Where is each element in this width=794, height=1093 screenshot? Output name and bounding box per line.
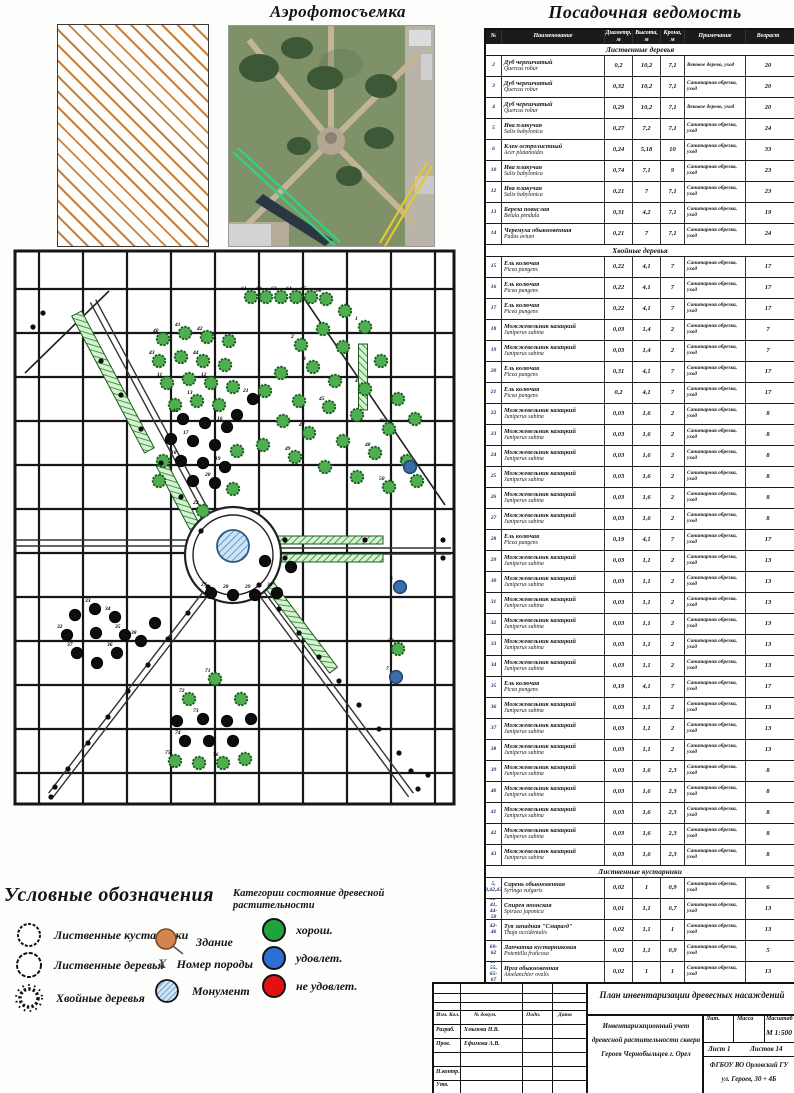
tree-number-label: 72 xyxy=(179,688,185,694)
tree-marker-good xyxy=(275,367,288,380)
tree-number-label: 5 xyxy=(400,456,403,462)
cell-age: 6 xyxy=(746,878,790,898)
cell-note: Санитарная обрезка, уход xyxy=(685,530,746,550)
cell-species: Можжевельник казацкийJuniperus sabina xyxy=(502,845,605,865)
cell-age: 13 xyxy=(746,551,790,571)
tree-marker-dark xyxy=(231,409,242,420)
cell-crown: 7,1 xyxy=(661,182,685,202)
path-tree-marker xyxy=(98,358,103,363)
cell-note: Санитарная обрезка, уход xyxy=(685,278,746,298)
cell-note: Санитарная обрезка, уход xyxy=(685,224,746,244)
tree-marker-good xyxy=(260,291,273,304)
cell-age: 13 xyxy=(746,593,790,613)
tree-marker-fair xyxy=(404,461,417,474)
cell-species: Ива плакучаяSalix babylonica xyxy=(502,119,605,139)
cell-diameter: 0,03 xyxy=(605,551,633,571)
cell-species: Ель колючаяPicea pungens xyxy=(502,278,605,298)
tree-marker-dark xyxy=(221,715,232,726)
cell-diameter: 0,03 xyxy=(605,572,633,592)
cell-crown: 7 xyxy=(661,383,685,403)
cell-number: 17 xyxy=(486,299,502,319)
cell-note: Санитарная обрезка, уход xyxy=(685,656,746,676)
cell-note: Вековое дерево, уход xyxy=(685,98,746,118)
condition-label: не удовлет. xyxy=(296,979,357,994)
cell-note: Санитарная обрезка, уход xyxy=(685,740,746,760)
stamp-org-line2: ул. Героев, 30 + 4Б xyxy=(706,1076,792,1083)
table-row: 25Можжевельник казацкийJuniperus sabina0… xyxy=(486,467,794,488)
table-row: 39Можжевельник казацкийJuniperus sabina0… xyxy=(486,761,794,782)
cell-diameter: 0,03 xyxy=(605,614,633,634)
cell-species: Можжевельник казацкийJuniperus sabina xyxy=(502,467,605,487)
cell-crown: 2 xyxy=(661,656,685,676)
table-row: 26Можжевельник казацкийJuniperus sabina0… xyxy=(486,488,794,509)
cell-species: Можжевельник казацкийJuniperus sabina xyxy=(502,719,605,739)
cell-height: 1,1 xyxy=(633,740,661,760)
table-row: 5, 9,42,43Сирень обыкновеннаяSyringa vul… xyxy=(486,878,794,899)
table-row: 38Можжевельник казацкийJuniperus sabina0… xyxy=(486,740,794,761)
tree-number-label: 7 xyxy=(386,666,389,672)
tree-number-label: 52 xyxy=(388,638,394,644)
cell-number: 36-41, 44-50 xyxy=(486,899,502,919)
table-row: 14Черемуха обыкновеннаяPadus avium0,2177… xyxy=(486,224,794,245)
tree-number-label: 15 xyxy=(173,408,179,414)
path-tree-marker xyxy=(425,772,430,777)
tree-marker-good xyxy=(275,291,288,304)
tree-marker-good xyxy=(383,481,396,494)
table-row: 33Можжевельник казацкийJuniperus sabina0… xyxy=(486,635,794,656)
tree-marker-dark xyxy=(187,475,198,486)
cell-note: Санитарная обрезка, уход xyxy=(685,161,746,181)
cell-age: 13 xyxy=(746,698,790,718)
cell-diameter: 0,31 xyxy=(605,203,633,223)
tree-number-label: 61 xyxy=(241,286,247,292)
tree-number-label: 22 xyxy=(192,500,199,506)
cell-height: 4,1 xyxy=(633,530,661,550)
cell-number: 35 xyxy=(486,677,502,697)
cell-number: 13 xyxy=(486,203,502,223)
aerial-photo xyxy=(228,25,435,247)
stamp-col-podp: Подп. xyxy=(526,1012,540,1018)
tree-marker-good xyxy=(175,351,188,364)
legend-item-trees: Лиственные деревья xyxy=(14,950,164,980)
cell-note: Санитарная обрезка, уход xyxy=(685,782,746,802)
tree-marker-dark xyxy=(91,657,102,668)
cell-crown: 7,1 xyxy=(661,224,685,244)
cell-note: Санитарная обрезка, уход xyxy=(685,404,746,424)
cell-diameter: 0,22 xyxy=(605,257,633,277)
stamp-row-razrab: Разраб. xyxy=(436,1027,455,1033)
cell-species: Можжевельник казацкийJuniperus sabina xyxy=(502,551,605,571)
path-tree-marker xyxy=(30,324,35,329)
tree-marker-dark xyxy=(111,647,122,658)
path-tree-marker xyxy=(65,766,70,771)
table-row: 24Можжевельник казацкийJuniperus sabina0… xyxy=(486,446,794,467)
tree-marker-dark xyxy=(259,555,270,566)
cell-crown: 2 xyxy=(661,425,685,445)
cell-number: 15 xyxy=(486,257,502,277)
path-tree-marker xyxy=(296,630,301,635)
tree-number-label: 18 xyxy=(171,450,177,456)
cell-diameter: 0,21 xyxy=(605,182,633,202)
cell-age: 20 xyxy=(746,77,790,97)
cell-age: 8 xyxy=(746,824,790,844)
table-row: 10Ива плакучаяSalix babylonica0,747,19Са… xyxy=(486,161,794,182)
cell-diameter: 0,03 xyxy=(605,320,633,340)
cell-height: 4,1 xyxy=(633,362,661,382)
stamp-project-line2: древесной растительности сквера xyxy=(590,1036,702,1044)
table-row: 43Можжевельник казацкийJuniperus sabina0… xyxy=(486,845,794,866)
cell-species: Ива плакучаяSalix babylonica xyxy=(502,182,605,202)
table-row: 22Можжевельник казацкийJuniperus sabina0… xyxy=(486,404,794,425)
cell-diameter: 0,03 xyxy=(605,341,633,361)
cell-species: Ирга обыкновеннаяAmelanchier ovalis xyxy=(502,962,605,982)
cell-age: 17 xyxy=(746,362,790,382)
cell-height: 4,2 xyxy=(633,203,661,223)
path-tree-marker xyxy=(118,392,123,397)
cell-height: 7 xyxy=(633,182,661,202)
cell-note: Санитарная обрезка, уход xyxy=(685,878,746,898)
table-row: 36Можжевельник казацкийJuniperus sabina0… xyxy=(486,698,794,719)
cell-diameter: 0,01 xyxy=(605,899,633,919)
bad-condition-icon xyxy=(262,974,286,998)
condition-label: удовлет. xyxy=(296,951,342,966)
cell-age: 13 xyxy=(746,572,790,592)
tree-marker-dark xyxy=(69,609,80,620)
tree-number-label: 73 xyxy=(193,708,199,714)
tree-marker-dark xyxy=(209,439,220,450)
cell-number: 14 xyxy=(486,224,502,244)
cell-note: Санитарная обрезка, уход xyxy=(685,824,746,844)
tree-number-label: 19 xyxy=(215,456,221,462)
cell-crown: 0,9 xyxy=(661,878,685,898)
stamp-mass-label: Масса xyxy=(737,1016,753,1022)
path-tree-marker xyxy=(198,528,203,533)
cell-species: Можжевельник казацкийJuniperus sabina xyxy=(502,404,605,424)
cell-species: Можжевельник казацкийJuniperus sabina xyxy=(502,614,605,634)
tree-marker-good xyxy=(339,305,352,318)
cell-note: Санитарная обрезка, уход xyxy=(685,182,746,202)
tree-marker-dark xyxy=(119,629,130,640)
cell-height: 4,1 xyxy=(633,278,661,298)
cell-note: Санитарная обрезка, уход xyxy=(685,920,746,940)
tree-marker-dark xyxy=(219,461,230,472)
cell-species: Можжевельник казацкийJuniperus sabina xyxy=(502,320,605,340)
cell-height: 10,2 xyxy=(633,56,661,76)
tree-number-label: 62 xyxy=(256,286,262,292)
stamp-project-line1: Инвентаризационный учет xyxy=(592,1022,700,1030)
cell-diameter: 0,32 xyxy=(605,77,633,97)
tree-marker-good xyxy=(359,321,372,334)
cell-species: Можжевельник казацкийJuniperus sabina xyxy=(502,635,605,655)
tree-number-label: 1 xyxy=(355,316,358,322)
legend-item-conifer: Хвойные деревья xyxy=(12,981,145,1015)
cell-height: 5,18 xyxy=(633,140,661,160)
tree-number-label: 74 xyxy=(175,730,181,736)
cell-diameter: 0,21 xyxy=(605,224,633,244)
table-row: 15Ель колючаяPicea pungens0,224,17Санита… xyxy=(486,257,794,278)
cell-number: 16 xyxy=(486,278,502,298)
cell-diameter: 0,03 xyxy=(605,509,633,529)
tree-marker-good xyxy=(201,331,214,344)
cell-number: 6 xyxy=(486,140,502,160)
cell-note: Санитарная обрезка, уход xyxy=(685,698,746,718)
cell-note: Санитарная обрезка, уход xyxy=(685,446,746,466)
cell-crown: 0,9 xyxy=(661,941,685,961)
path-tree-marker xyxy=(48,794,53,799)
cell-species: Можжевельник казацкийJuniperus sabina xyxy=(502,572,605,592)
cell-note: Санитарная обрезка, уход xyxy=(685,341,746,361)
cell-age: 17 xyxy=(746,257,790,277)
cell-height: 10,2 xyxy=(633,98,661,118)
cell-diameter: 0,03 xyxy=(605,635,633,655)
cell-height: 1,6 xyxy=(633,509,661,529)
cell-diameter: 0,03 xyxy=(605,782,633,802)
tree-number-label: 12 xyxy=(201,372,207,378)
cell-age: 13 xyxy=(746,962,790,982)
cell-height: 10,2 xyxy=(633,77,661,97)
column-header: Примечание xyxy=(685,30,746,43)
path-tree-marker xyxy=(145,662,150,667)
table-row: 18Можжевельник казацкийJuniperus sabina0… xyxy=(486,320,794,341)
tree-marker-good xyxy=(351,409,364,422)
tree-marker-good xyxy=(197,355,210,368)
cell-crown: 2 xyxy=(661,551,685,571)
path-tree-marker xyxy=(85,740,90,745)
cell-number: 34 xyxy=(486,656,502,676)
cell-age: 8 xyxy=(746,509,790,529)
cell-crown: 2,3 xyxy=(661,824,685,844)
cell-age: 13 xyxy=(746,920,790,940)
tree-marker-good xyxy=(153,475,166,488)
cell-height: 4,1 xyxy=(633,383,661,403)
cell-crown: 7 xyxy=(661,257,685,277)
cell-diameter: 0,02 xyxy=(605,920,633,940)
cell-species: Ель колючаяPicea pungens xyxy=(502,677,605,697)
cell-height: 1,1 xyxy=(633,572,661,592)
legend-label: Номер породы xyxy=(177,957,253,972)
cell-age: 19 xyxy=(746,203,790,223)
cell-height: 1,4 xyxy=(633,341,661,361)
tree-marker-dark xyxy=(197,457,208,468)
tree-marker-dark xyxy=(165,433,176,444)
cell-note: Санитарная обрезка, уход xyxy=(685,203,746,223)
tree-marker-good xyxy=(295,339,308,352)
cell-number: 4 xyxy=(486,98,502,118)
cell-note: Санитарная обрезка, уход xyxy=(685,77,746,97)
cell-number: 2 xyxy=(486,56,502,76)
tree-number-label: 47 xyxy=(298,422,305,428)
table-row: 21Ель колючаяPicea pungens0,24,17Санитар… xyxy=(486,383,794,404)
cell-age: 13 xyxy=(746,899,790,919)
cell-height: 1,6 xyxy=(633,761,661,781)
cell-number: 32 xyxy=(486,614,502,634)
cell-age: 17 xyxy=(746,278,790,298)
cell-diameter: 0,03 xyxy=(605,803,633,823)
tree-marker-dark xyxy=(61,629,72,640)
cell-number: 26 xyxy=(486,488,502,508)
tree-marker-dark xyxy=(245,713,256,724)
tree-number-label: 76 xyxy=(213,752,219,758)
tree-marker-fair xyxy=(390,671,403,684)
cell-diameter: 0,02 xyxy=(605,962,633,982)
cell-crown: 2 xyxy=(661,320,685,340)
cell-number: 12 xyxy=(486,182,502,202)
tree-number-label: 50 xyxy=(379,476,385,482)
cell-height: 1 xyxy=(633,878,661,898)
column-header: Высота, м xyxy=(633,30,661,43)
cell-note: Санитарная обрезка, уход xyxy=(685,467,746,487)
cell-species: Можжевельник казацкийJuniperus sabina xyxy=(502,425,605,445)
tree-number-label: 17 xyxy=(183,430,189,436)
planting-table: №НаименованиеДиаметр, мВысота, мКрона, м… xyxy=(484,28,794,1005)
hedge-strip xyxy=(359,344,368,410)
cell-age: 13 xyxy=(746,740,790,760)
tree-number-label: 75 xyxy=(165,750,171,756)
cell-species: Клен остролистныйAcer platanoides xyxy=(502,140,605,160)
cell-species: Дуб черешчатыйQuercus robur xyxy=(502,77,605,97)
table-row: 34Можжевельник казацкийJuniperus sabina0… xyxy=(486,656,794,677)
tree-marker-dark xyxy=(135,635,146,646)
tree-marker-good xyxy=(213,399,226,412)
cell-height: 1,6 xyxy=(633,845,661,865)
cell-height: 7,2 xyxy=(633,119,661,139)
stamp-lit-label: Лит. xyxy=(706,1016,720,1022)
path-tree-marker xyxy=(362,537,367,542)
tree-marker-good xyxy=(359,383,372,396)
stamp-name-prov: Ефимова А.В. xyxy=(464,1041,500,1047)
cell-note: Санитарная обрезка, уход xyxy=(685,677,746,697)
stamp-scale-label: Масштаб xyxy=(766,1016,793,1022)
condition-categories-title: Категории состояние древесной растительн… xyxy=(233,888,413,912)
tree-marker-good xyxy=(392,643,405,656)
cell-diameter: 0,22 xyxy=(605,299,633,319)
tree-marker-good xyxy=(209,673,222,686)
cell-number: 19 xyxy=(486,341,502,361)
path-tree-marker xyxy=(415,786,420,791)
tree-marker-good xyxy=(383,423,396,436)
cell-height: 4,1 xyxy=(633,299,661,319)
cell-diameter: 0,29 xyxy=(605,98,633,118)
tree-marker-dark xyxy=(249,589,260,600)
stamp-sheets-total: Листов 14 xyxy=(750,1045,783,1053)
table-row: 31Можжевельник казацкийJuniperus sabina0… xyxy=(486,593,794,614)
cell-crown: 2 xyxy=(661,593,685,613)
cell-species: Можжевельник казацкийJuniperus sabina xyxy=(502,341,605,361)
cell-height: 1,6 xyxy=(633,488,661,508)
planting-table-title: Посадочная ведомость xyxy=(500,2,790,23)
species-number-icon: X xyxy=(158,956,167,972)
cell-crown: 2 xyxy=(661,719,685,739)
cell-species: Ель колючаяPicea pungens xyxy=(502,530,605,550)
cell-crown: 0,7 xyxy=(661,899,685,919)
drawing-sheet: { "colors":{ "hatch_orange":"#c9813f","t… xyxy=(0,0,794,1093)
aerial-monument xyxy=(325,132,337,144)
fair-condition-icon xyxy=(262,946,286,970)
cell-crown: 7,1 xyxy=(661,98,685,118)
cell-diameter: 0,02 xyxy=(605,941,633,961)
tree-marker-dark xyxy=(179,735,190,746)
tree-marker-good xyxy=(409,413,422,426)
cell-note: Санитарная обрезка, уход xyxy=(685,509,746,529)
cell-diameter: 0,03 xyxy=(605,719,633,739)
stamp-col-docnum: № докум. xyxy=(474,1012,497,1018)
table-row: 12Ива плакучаяSalix babylonica0,2177,1Са… xyxy=(486,182,794,203)
tree-marker-dark xyxy=(285,561,296,572)
cell-crown: 7,1 xyxy=(661,77,685,97)
cell-diameter: 0,03 xyxy=(605,425,633,445)
cell-note: Санитарная обрезка, уход xyxy=(685,593,746,613)
cell-number: 53-55, 65-67 xyxy=(486,962,502,982)
deciduous-tree-icon xyxy=(14,950,44,980)
cell-crown: 7 xyxy=(661,677,685,697)
cell-age: 33 xyxy=(746,140,790,160)
tree-marker-good xyxy=(303,427,316,440)
table-row: 27Можжевельник казацкийJuniperus sabina0… xyxy=(486,509,794,530)
cell-height: 1,1 xyxy=(633,635,661,655)
cell-note: Санитарная обрезка, уход xyxy=(685,572,746,592)
cell-height: 1,6 xyxy=(633,824,661,844)
path-tree-marker xyxy=(178,494,183,499)
cell-crown: 7 xyxy=(661,362,685,382)
cell-number: 22 xyxy=(486,404,502,424)
column-header: № xyxy=(486,30,502,43)
tree-number-label: 45 xyxy=(318,396,325,402)
cell-number: 27 xyxy=(486,509,502,529)
table-row: 28Ель колючаяPicea pungens0,194,17Санита… xyxy=(486,530,794,551)
cell-note: Санитарная обрезка, уход xyxy=(685,383,746,403)
table-row: 32Можжевельник казацкийJuniperus sabina0… xyxy=(486,614,794,635)
tree-marker-good xyxy=(193,757,206,770)
cell-diameter: 0,03 xyxy=(605,740,633,760)
tree-marker-good xyxy=(183,373,196,386)
stamp-name-razrab: Хмызова Н.В. xyxy=(464,1027,499,1033)
cell-diameter: 0,24 xyxy=(605,140,633,160)
cell-number: 39 xyxy=(486,761,502,781)
cell-age: 17 xyxy=(746,677,790,697)
cell-age: 20 xyxy=(746,56,790,76)
table-row: 3Дуб черешчатыйQuercus robur0,3210,27,1С… xyxy=(486,77,794,98)
cell-diameter: 0,27 xyxy=(605,119,633,139)
cell-species: Можжевельник казацкийJuniperus sabina xyxy=(502,740,605,760)
cell-note: Санитарная обрезка, уход xyxy=(685,551,746,571)
cell-age: 8 xyxy=(746,488,790,508)
cell-diameter: 0,03 xyxy=(605,845,633,865)
table-row: 16Ель колючаяPicea pungens0,224,17Санита… xyxy=(486,278,794,299)
cell-number: 23 xyxy=(486,425,502,445)
cell-species: Дуб черешчатыйQuercus robur xyxy=(502,98,605,118)
tree-number-label: 33 xyxy=(84,598,91,604)
cell-age: 8 xyxy=(746,782,790,802)
cell-crown: 2 xyxy=(661,488,685,508)
path-tree-marker xyxy=(138,426,143,431)
path-tree-marker xyxy=(408,768,413,773)
tree-marker-good xyxy=(369,447,382,460)
legend-label: Здание xyxy=(196,935,233,950)
tree-marker-good xyxy=(153,355,166,368)
cell-note: Санитарная обрезка, уход xyxy=(685,635,746,655)
cell-number: 20 xyxy=(486,362,502,382)
cell-species: Можжевельник казацкийJuniperus sabina xyxy=(502,509,605,529)
tree-number-label: 64 xyxy=(286,286,292,292)
cell-diameter: 0,2 xyxy=(605,383,633,403)
cell-height: 1,4 xyxy=(633,320,661,340)
cell-note: Вековое дерево, уход xyxy=(685,56,746,76)
cell-crown: 7,1 xyxy=(661,56,685,76)
path-tree-marker xyxy=(40,310,45,315)
cell-crown: 2,3 xyxy=(661,803,685,823)
cell-species: Ель колючаяPicea pungens xyxy=(502,299,605,319)
condition-label: хорош. xyxy=(296,923,333,938)
